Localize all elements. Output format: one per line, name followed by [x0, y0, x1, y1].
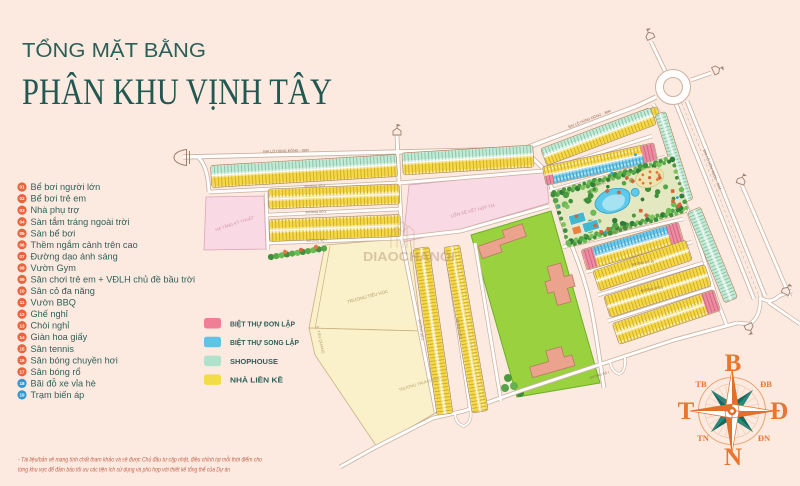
svg-text:Vườn Gym: Vườn Gym — [31, 263, 77, 273]
svg-text:ĐƯỜNG SỐ 9: ĐƯỜNG SỐ 9 — [305, 183, 326, 189]
svg-text:Chòi nghỉ: Chòi nghỉ — [31, 321, 70, 331]
svg-text:Sân chơi trẻ em + VĐLH chủ đề: Sân chơi trẻ em + VĐLH chủ đề bầu trời — [31, 275, 196, 285]
svg-text:Nhà phụ trợ: Nhà phụ trợ — [31, 205, 80, 215]
svg-text:Sàn tắm tráng ngoài trời: Sàn tắm tráng ngoài trời — [31, 217, 130, 227]
svg-text:T: T — [678, 398, 695, 425]
svg-text:07: 07 — [19, 254, 25, 259]
svg-text:Bãi đỗ xe vỉa hè: Bãi đỗ xe vỉa hè — [31, 379, 96, 389]
svg-text:ĐƯỜNG SỐ 7: ĐƯỜNG SỐ 7 — [307, 237, 328, 243]
svg-text:DIAOCHANOI: DIAOCHANOI — [363, 250, 455, 264]
svg-text:02: 02 — [19, 196, 25, 201]
svg-text:03: 03 — [19, 208, 25, 213]
svg-text:10: 10 — [19, 289, 25, 294]
svg-text:Sân bóng chuyền hơi: Sân bóng chuyền hơi — [31, 355, 118, 365]
svg-text:08: 08 — [19, 266, 25, 271]
svg-text:Sân bóng rổ: Sân bóng rổ — [31, 367, 81, 377]
svg-text:15: 15 — [19, 346, 25, 351]
svg-text:Trạm biến áp: Trạm biến áp — [31, 390, 85, 400]
svg-text:Ghế nghỉ: Ghế nghỉ — [31, 309, 68, 319]
svg-text:Sân cỏ đa năng: Sân cỏ đa năng — [31, 286, 95, 296]
svg-text:Thềm ngắm cảnh trên cao: Thềm ngắm cảnh trên cao — [31, 240, 138, 250]
svg-text:11: 11 — [20, 300, 25, 305]
svg-text:Giàn hoa giấy: Giàn hoa giấy — [31, 332, 88, 342]
svg-text:05: 05 — [19, 231, 25, 236]
svg-text:13: 13 — [19, 323, 25, 328]
svg-text:- Tài liệu/bản vẽ mang tính ch: - Tài liệu/bản vẽ mang tính chất tham kh… — [18, 455, 262, 464]
svg-text:BIỆT THỰ ĐƠN LẬP: BIỆT THỰ ĐƠN LẬP — [230, 319, 295, 328]
svg-text:09: 09 — [19, 277, 25, 282]
svg-text:14: 14 — [19, 335, 25, 340]
svg-text:TỔNG MẶT BẰNG: TỔNG MẶT BẰNG — [22, 38, 206, 62]
svg-text:NHÀ LIỀN KỀ: NHÀ LIỀN KỀ — [230, 375, 283, 385]
svg-text:TB: TB — [695, 379, 707, 389]
svg-text:16: 16 — [19, 358, 25, 363]
svg-text:Đường dạo ánh sáng: Đường dạo ánh sáng — [31, 251, 118, 261]
svg-text:ĐƯỜNG SỐ 8: ĐƯỜNG SỐ 8 — [306, 209, 327, 215]
svg-text:ĐN: ĐN — [758, 433, 771, 443]
svg-text:Bể bơi người lớn: Bể bơi người lớn — [31, 182, 101, 192]
svg-text:B: B — [725, 350, 742, 377]
svg-text:ĐB: ĐB — [760, 379, 772, 389]
svg-text:TN: TN — [697, 433, 710, 443]
svg-text:SHOPHOUSE: SHOPHOUSE — [230, 357, 278, 366]
svg-text:BIỆT THỰ SONG LẬP: BIỆT THỰ SONG LẬP — [230, 338, 299, 347]
svg-text:18: 18 — [19, 381, 25, 386]
svg-text:Sân tennis: Sân tennis — [31, 344, 75, 354]
svg-text:Đ: Đ — [770, 398, 788, 425]
svg-text:01: 01 — [19, 185, 25, 190]
svg-text:N: N — [724, 444, 742, 471]
svg-text:Vườn BBQ: Vườn BBQ — [31, 298, 76, 308]
svg-text:19: 19 — [19, 393, 25, 398]
svg-text:12: 12 — [19, 312, 25, 317]
svg-text:từng khu vực để đảm bảo tối ưu: từng khu vực để đảm bảo tối ưu các tiện … — [18, 466, 230, 474]
svg-text:06: 06 — [19, 242, 25, 247]
svg-text:Sàn bể bơi: Sàn bể bơi — [31, 228, 76, 238]
svg-text:PHÂN KHU VỊNH TÂY: PHÂN KHU VỊNH TÂY — [22, 71, 332, 113]
svg-text:17: 17 — [19, 370, 25, 375]
svg-text:04: 04 — [19, 219, 25, 224]
svg-text:Bể bơi trẻ em: Bể bơi trẻ em — [31, 194, 87, 204]
